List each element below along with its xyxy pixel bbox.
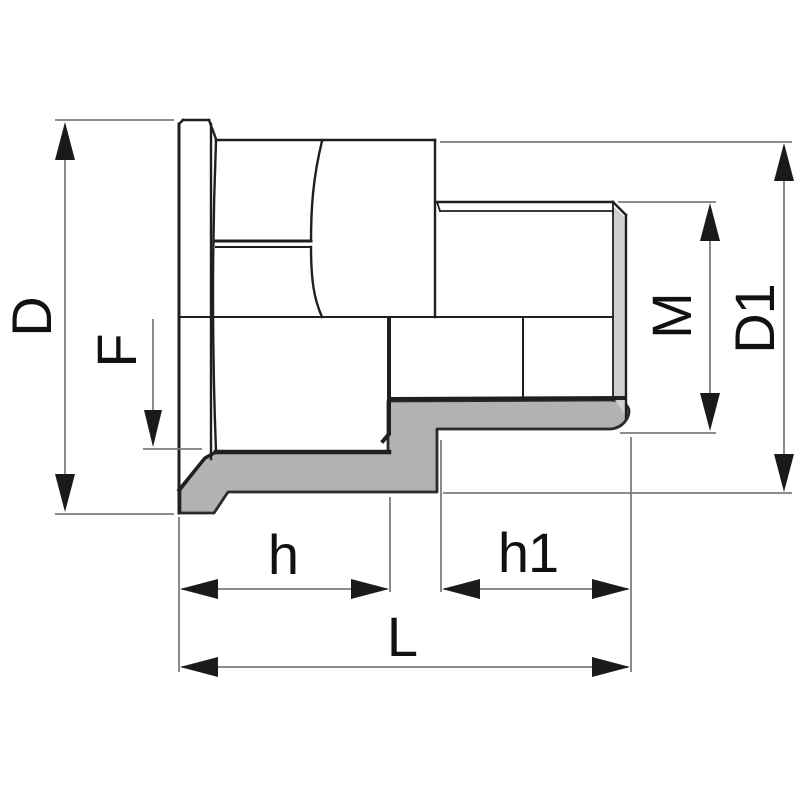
hex-left-face-arc	[213, 141, 216, 451]
arrow-L-left	[180, 657, 218, 677]
female-thread-end-edge	[383, 318, 389, 441]
section-fill-body	[180, 400, 629, 513]
dimension-label-D: D	[0, 297, 63, 336]
arrow-D1-down	[774, 454, 794, 492]
hex-corner-curve-lower	[311, 247, 322, 317]
male-bore-wall-edge	[390, 398, 624, 399]
arrow-M-up	[700, 203, 720, 241]
dimension-label-h: h	[268, 523, 298, 586]
arrow-h-left	[180, 579, 218, 599]
dimension-label-F: F	[85, 334, 148, 367]
dimension-label-h1: h1	[498, 521, 558, 584]
dimension-label-D1: D1	[723, 284, 786, 354]
arrow-F-down	[144, 410, 162, 447]
arrow-D1-up	[774, 143, 794, 181]
hex-corner-curve-upper	[311, 141, 322, 241]
dimension-label-M: M	[640, 293, 703, 339]
dimension-linework	[55, 120, 792, 672]
dimension-label-L: L	[387, 605, 417, 668]
technical-drawing-threaded-adapter: D F M D1 h h1 L	[0, 0, 800, 800]
drawing-canvas: D F M D1 h h1 L	[0, 0, 800, 800]
flange-top-left-corner	[179, 120, 183, 124]
section-cut-fills	[180, 206, 629, 513]
arrow-M-down	[700, 393, 720, 431]
arrow-h1-right	[592, 579, 630, 599]
thread-end-chamfer-shading	[613, 206, 626, 416]
arrow-h1-left	[442, 579, 480, 599]
thread-start-tick	[437, 202, 440, 211]
arrow-h-right	[351, 579, 389, 599]
arrow-D-up	[55, 122, 75, 160]
arrow-D-down	[55, 474, 75, 512]
arrow-L-right	[592, 657, 630, 677]
